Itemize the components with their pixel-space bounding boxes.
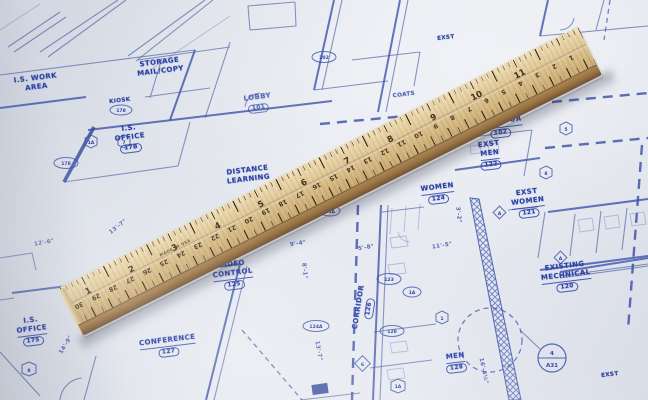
room-label-line: OFFICE [16, 323, 48, 337]
svg-text:1A: 1A [395, 384, 402, 390]
room-label-men: MEN 128 [444, 351, 468, 374]
room-label-line: LOBBY [243, 91, 271, 103]
room-label-lobby: LOBBY 101 [243, 91, 273, 114]
room-label-line: MEN [445, 351, 465, 364]
top-right-walls [540, 0, 648, 36]
svg-text:6: 6 [361, 362, 364, 368]
svg-text:8: 8 [27, 368, 30, 374]
svg-text:4: 4 [550, 351, 554, 357]
svg-text:178: 178 [116, 108, 126, 114]
blueprint-photo: 202 178 178 123 128 14A 124A 1A 1 1A 5 [0, 0, 648, 400]
room-label-exst-women: EXST WOMEN 121 [510, 186, 547, 220]
svg-text:1A: 1A [88, 140, 95, 146]
svg-text:1A: 1A [409, 290, 416, 296]
svg-text:8: 8 [544, 171, 547, 177]
svg-text:128: 128 [387, 329, 397, 335]
svg-text:178: 178 [61, 161, 71, 167]
room-label-existing-mechanical: EXISTING MECHNICAL 120 [539, 259, 592, 295]
room-label-is-office: I.S. OFFICE 17B [113, 122, 147, 154]
room-label-is-office-175: I.S. OFFICE 175 [15, 314, 49, 348]
joist-lines [0, 0, 230, 70]
room-label-women-center: WOMEN 124 [420, 181, 456, 206]
svg-text:5: 5 [564, 127, 567, 133]
room-label-line: OFFICE [114, 131, 145, 144]
svg-text:124A: 124A [309, 324, 323, 330]
svg-text:202: 202 [319, 55, 329, 61]
svg-text:A: A [498, 211, 502, 217]
svg-text:A31: A31 [546, 363, 558, 369]
svg-text:1: 1 [440, 316, 443, 322]
detail-callout-a31: 4 A31 [520, 330, 566, 372]
svg-text:123: 123 [384, 277, 394, 283]
svg-text:A: A [559, 256, 563, 262]
